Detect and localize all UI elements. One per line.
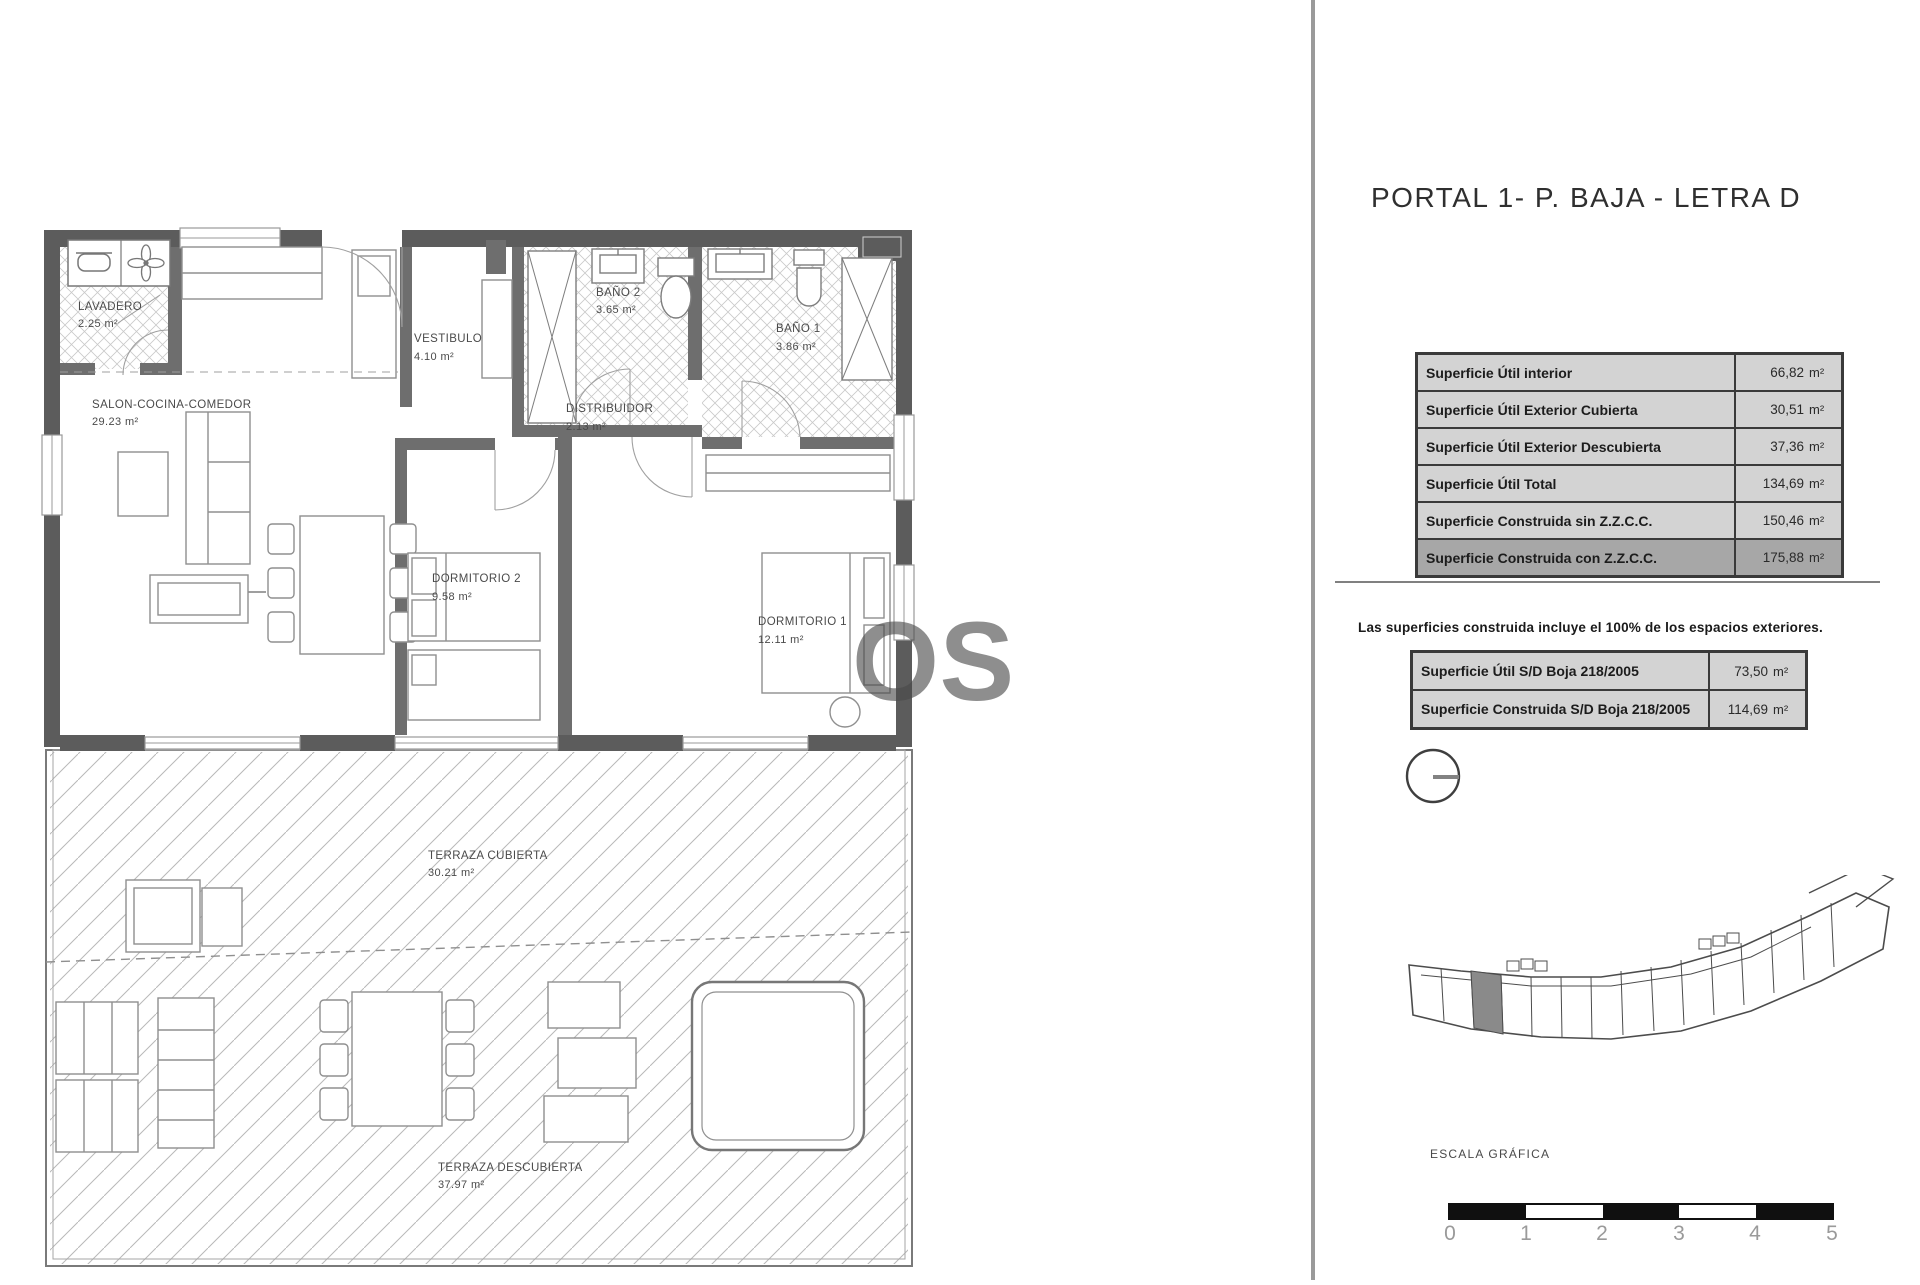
scale-tick: 0 bbox=[1444, 1222, 1456, 1246]
toilet-fixture bbox=[794, 250, 824, 306]
room-label-bano1: BAÑO 1 bbox=[776, 322, 821, 335]
washbasin-icon bbox=[76, 253, 112, 271]
table-row: Superficie Útil Total 134,69m² bbox=[1418, 464, 1841, 501]
room-label-terraza-cubierta: TERRAZA CUBIERTA bbox=[428, 850, 548, 862]
row-unit: m² bbox=[1809, 365, 1835, 380]
row-unit: m² bbox=[1773, 664, 1799, 679]
row-unit: m² bbox=[1809, 550, 1835, 565]
row-label: Superficie Construida S/D Boja 218/2005 bbox=[1413, 691, 1710, 727]
north-indicator-icon bbox=[1403, 746, 1473, 808]
boja-table: Superficie Útil S/D Boja 218/2005 73,50m… bbox=[1410, 650, 1808, 730]
row-value: 66,82 bbox=[1740, 365, 1804, 380]
row-value: 134,69 bbox=[1740, 476, 1804, 491]
row-unit: m² bbox=[1809, 476, 1835, 491]
laundry-icon-box bbox=[68, 240, 170, 286]
row-unit: m² bbox=[1809, 439, 1835, 454]
scale-tick: 5 bbox=[1826, 1222, 1838, 1246]
horizontal-separator bbox=[1335, 581, 1880, 583]
row-unit: m² bbox=[1809, 513, 1835, 528]
room-area-salon: 29.23 m² bbox=[92, 416, 139, 428]
room-area-vestibulo: 4.10 m² bbox=[414, 351, 454, 363]
scale-tick: 4 bbox=[1749, 1222, 1761, 1246]
floor-plan-svg: LAVADERO 2.25 m² VESTIBULO 4.10 m² BAÑO … bbox=[0, 0, 1313, 1280]
living-room-furniture bbox=[118, 412, 416, 654]
room-area-dormitorio2: 9.58 m² bbox=[432, 591, 472, 603]
scale-segment bbox=[1526, 1205, 1602, 1218]
page-title: PORTAL 1- P. BAJA - LETRA D bbox=[1371, 182, 1801, 214]
table-row-total: Superficie Construida con Z.Z.C.C. 175,8… bbox=[1418, 538, 1841, 575]
scale-label: ESCALA GRÁFICA bbox=[1430, 1147, 1550, 1161]
scale-tick: 3 bbox=[1673, 1222, 1685, 1246]
scale-tick: 1 bbox=[1520, 1222, 1532, 1246]
row-label: Superficie Útil interior bbox=[1418, 355, 1736, 390]
table-row: Superficie Útil interior 66,82m² bbox=[1418, 355, 1841, 390]
room-area-distribuidor: 2.13 m² bbox=[566, 421, 606, 433]
table-row: Superficie Útil Exterior Cubierta 30,51m… bbox=[1418, 390, 1841, 427]
sink-fixture bbox=[708, 249, 772, 279]
room-label-distribuidor: DISTRIBUIDOR bbox=[566, 403, 653, 415]
room-label-lavadero: LAVADERO bbox=[78, 301, 142, 313]
row-unit: m² bbox=[1809, 402, 1835, 417]
terrace-sliding-doors bbox=[145, 737, 808, 749]
table-row: Superficie Construida S/D Boja 218/2005 … bbox=[1413, 689, 1805, 727]
surface-table: Superficie Útil interior 66,82m² Superfi… bbox=[1415, 352, 1844, 578]
table-row: Superficie Útil Exterior Descubierta 37,… bbox=[1418, 427, 1841, 464]
row-label: Superficie Útil Total bbox=[1418, 466, 1736, 501]
shower-fixture bbox=[528, 251, 576, 423]
armchair bbox=[118, 452, 168, 516]
scale-segment bbox=[1450, 1205, 1526, 1218]
dining-table bbox=[268, 516, 416, 654]
room-area-terraza-cubierta: 30.21 m² bbox=[428, 867, 475, 879]
row-label: Superficie Útil Exterior Descubierta bbox=[1418, 429, 1736, 464]
sofa bbox=[186, 412, 250, 564]
closet bbox=[482, 280, 512, 378]
room-label-dormitorio1: DORMITORIO 1 bbox=[758, 616, 847, 628]
scale-segment bbox=[1679, 1205, 1755, 1218]
info-panel: PORTAL 1- P. BAJA - LETRA D Superficie Ú… bbox=[1311, 0, 1920, 1280]
room-area-bano1: 3.86 m² bbox=[776, 341, 816, 353]
wardrobe bbox=[706, 455, 890, 491]
row-value: 175,88 bbox=[1740, 550, 1804, 565]
row-label: Superficie Útil Exterior Cubierta bbox=[1418, 392, 1736, 427]
bed bbox=[408, 553, 540, 641]
room-area-bano2: 3.65 m² bbox=[596, 304, 636, 316]
surface-note: Las superficies construida incluye el 10… bbox=[1358, 620, 1858, 635]
room-label-dormitorio2: DORMITORIO 2 bbox=[432, 573, 521, 585]
shaft-block bbox=[858, 233, 906, 261]
scale-tick: 2 bbox=[1596, 1222, 1608, 1246]
watermark: OS bbox=[852, 599, 1015, 724]
outdoor-sofa-cushion bbox=[134, 888, 192, 944]
room-label-vestibulo: VESTIBULO bbox=[414, 333, 482, 345]
room-label-terraza-descubierta: TERRAZA DESCUBIERTA bbox=[438, 1162, 583, 1174]
row-label: Superficie Útil S/D Boja 218/2005 bbox=[1413, 653, 1710, 689]
row-value: 73,50 bbox=[1714, 664, 1768, 679]
table-row: Superficie Construida sin Z.Z.C.C. 150,4… bbox=[1418, 501, 1841, 538]
row-unit: m² bbox=[1773, 702, 1799, 717]
room-area-terraza-descubierta: 37.97 m² bbox=[438, 1179, 485, 1191]
sun-lounger bbox=[158, 998, 214, 1148]
scale-segment bbox=[1756, 1205, 1832, 1218]
bed bbox=[408, 650, 540, 720]
scale-bar bbox=[1448, 1203, 1834, 1220]
highlighted-unit bbox=[1471, 971, 1503, 1034]
daybed bbox=[692, 982, 864, 1150]
room-label-bano2: BAÑO 2 bbox=[596, 286, 641, 299]
row-value: 30,51 bbox=[1740, 402, 1804, 417]
table-row: Superficie Útil S/D Boja 218/2005 73,50m… bbox=[1413, 653, 1805, 689]
outdoor-side-table bbox=[202, 888, 242, 946]
floor-plan: LAVADERO 2.25 m² VESTIBULO 4.10 m² BAÑO … bbox=[0, 0, 1313, 1280]
row-label: Superficie Construida con Z.Z.C.C. bbox=[1418, 540, 1736, 575]
coffee-table bbox=[150, 575, 248, 623]
scale-numbers: 0 1 2 3 4 5 bbox=[1448, 1222, 1834, 1252]
kitchen-counter bbox=[182, 247, 396, 378]
room-area-lavadero: 2.25 m² bbox=[78, 318, 118, 330]
row-value: 37,36 bbox=[1740, 439, 1804, 454]
toilet-fixture bbox=[658, 258, 694, 318]
row-value: 150,46 bbox=[1740, 513, 1804, 528]
row-label: Superficie Construida sin Z.Z.C.C. bbox=[1418, 503, 1736, 538]
scale-segment bbox=[1603, 1205, 1679, 1218]
room-label-salon: SALON-COCINA-COMEDOR bbox=[92, 399, 251, 411]
shower-fixture bbox=[842, 258, 892, 380]
covered-terrace-furniture bbox=[126, 880, 242, 952]
site-plan bbox=[1391, 875, 1911, 1075]
room-area-dormitorio1: 12.11 m² bbox=[758, 634, 804, 646]
outdoor-dining-table bbox=[320, 992, 474, 1126]
sink-fixture bbox=[592, 249, 644, 283]
row-value: 114,69 bbox=[1714, 702, 1768, 717]
